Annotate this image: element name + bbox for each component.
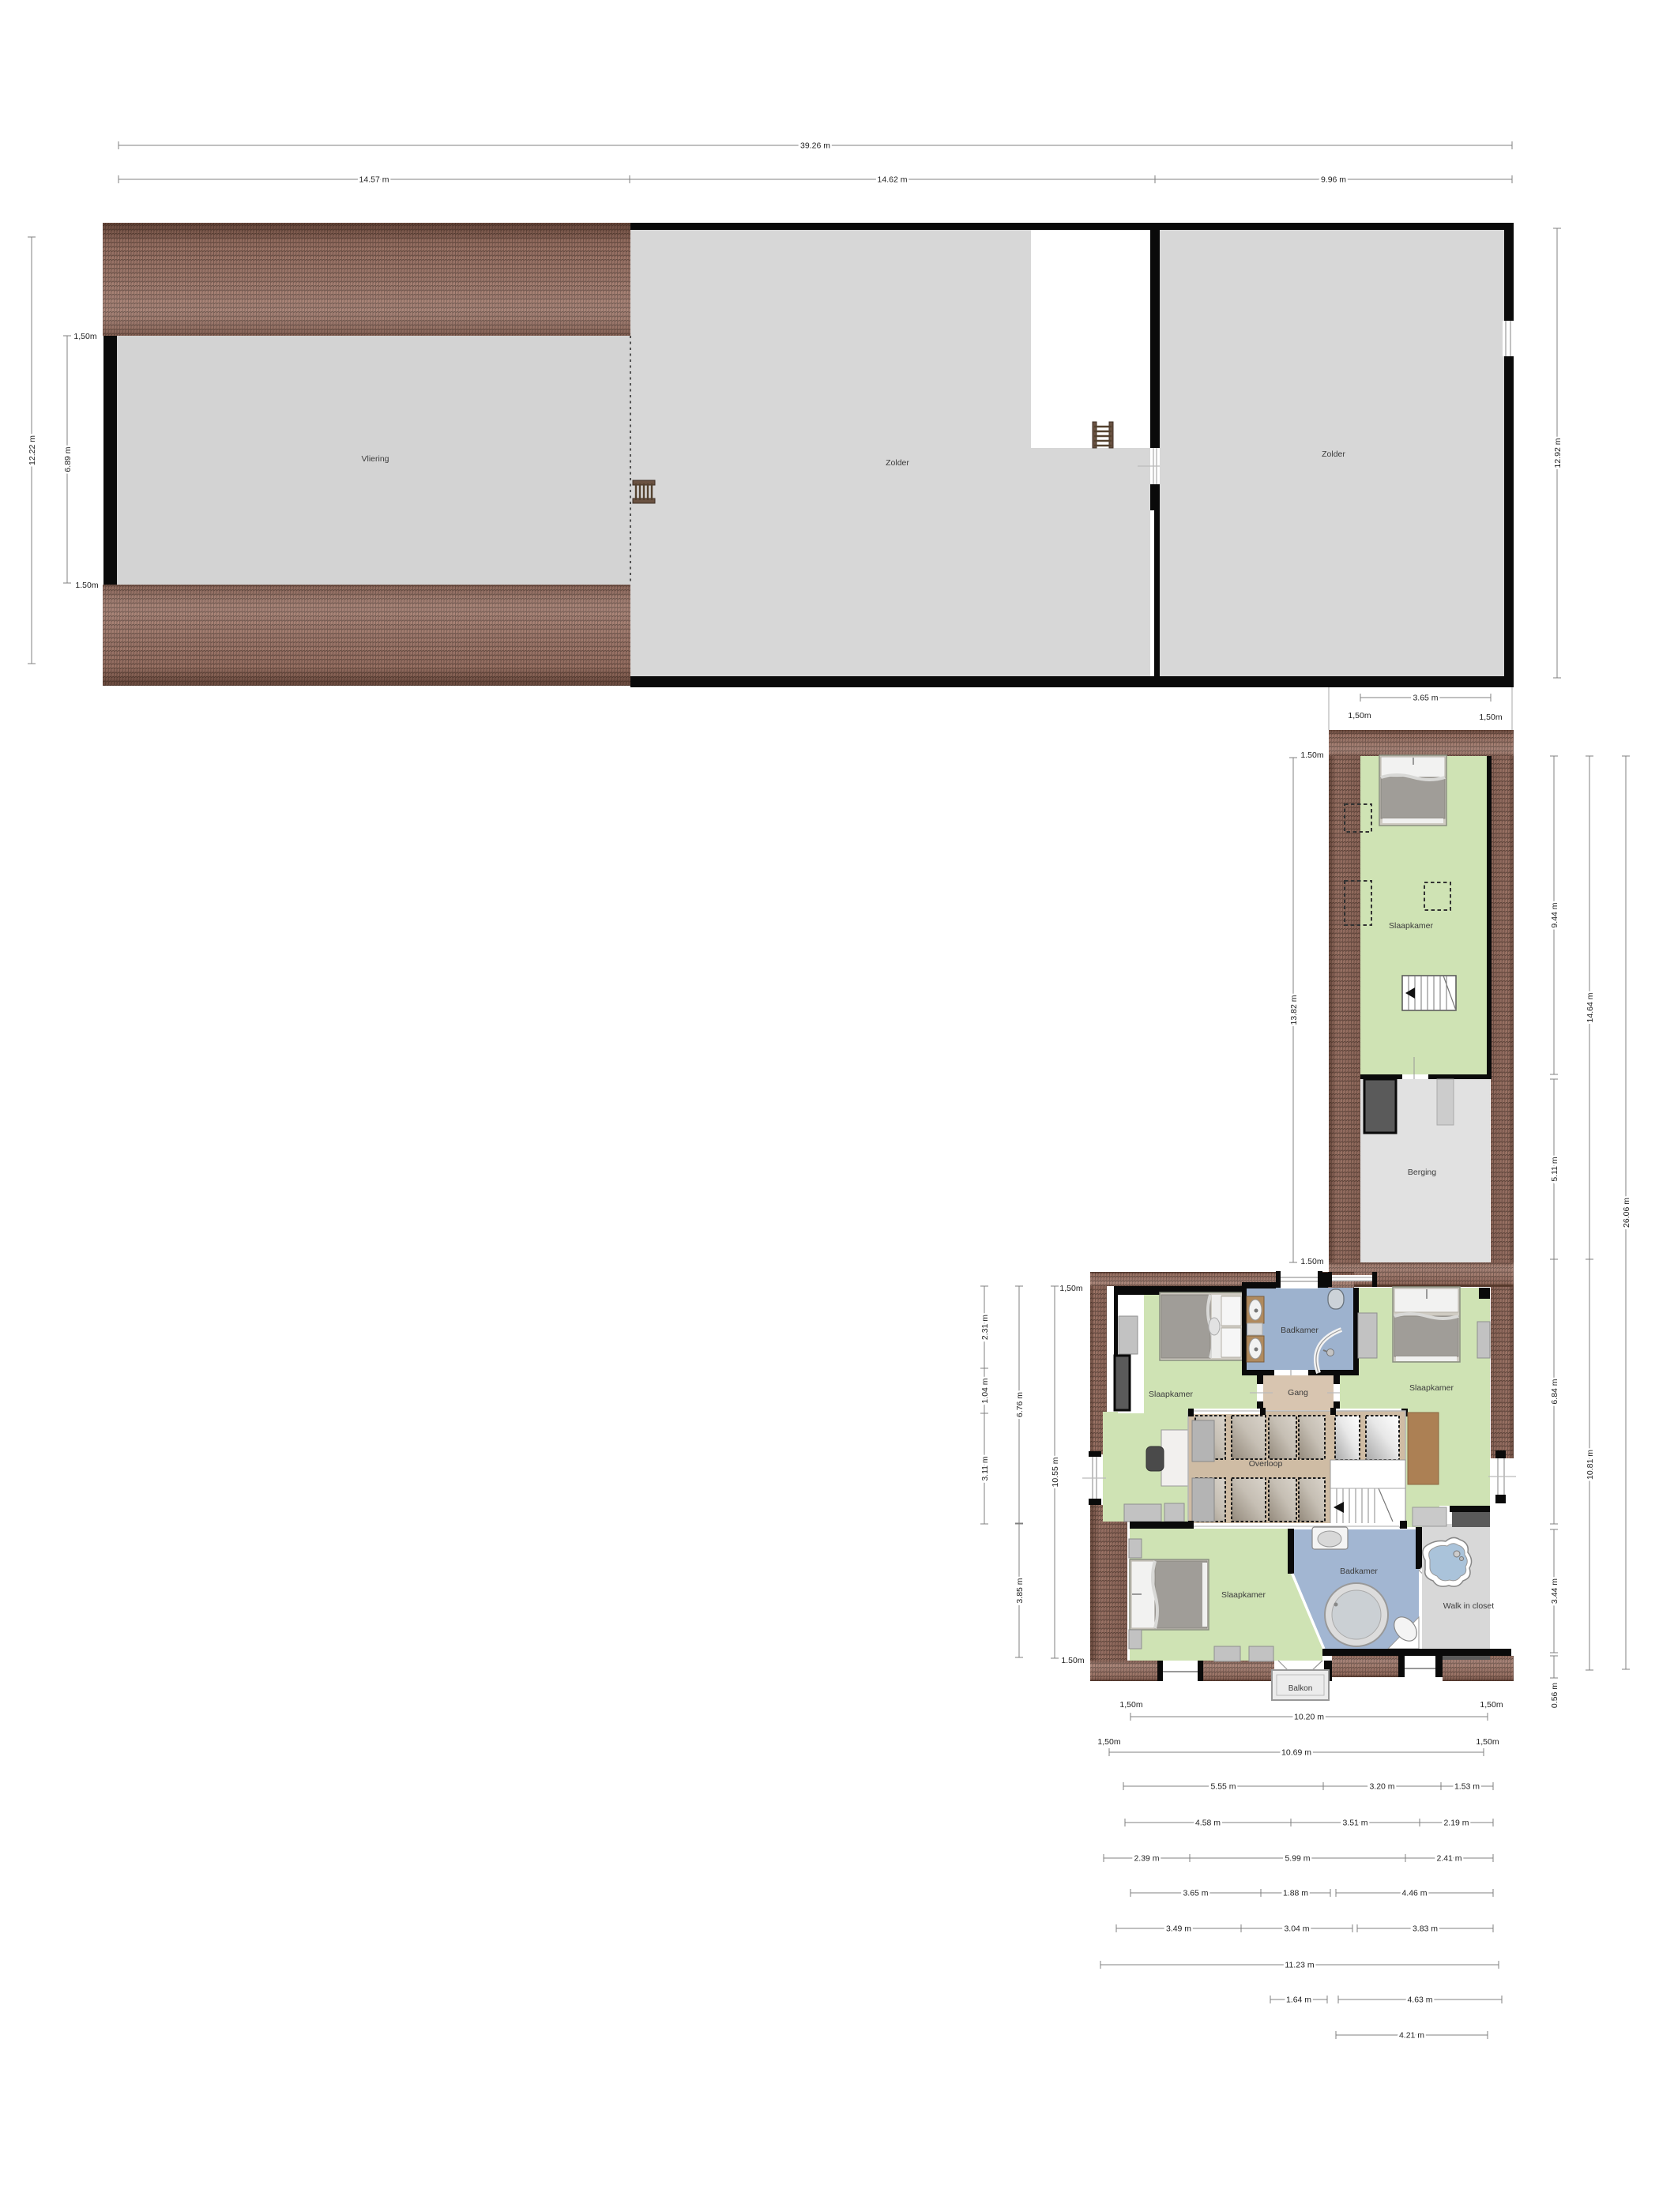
- svg-text:3.44 m: 3.44 m: [1550, 1578, 1559, 1604]
- svg-text:2.19 m: 2.19 m: [1443, 1819, 1469, 1828]
- svg-text:12.92 m: 12.92 m: [1553, 438, 1563, 468]
- svg-text:2.39 m: 2.39 m: [1134, 1854, 1159, 1864]
- svg-text:14.64 m: 14.64 m: [1586, 992, 1595, 1022]
- svg-text:11.23 m: 11.23 m: [1285, 1961, 1314, 1970]
- svg-text:Overloop: Overloop: [1249, 1459, 1283, 1469]
- svg-text:1,50m: 1,50m: [1059, 1284, 1082, 1293]
- svg-text:1.50m: 1.50m: [75, 581, 98, 590]
- svg-text:Slaapkamer: Slaapkamer: [1221, 1590, 1266, 1600]
- svg-text:10.69 m: 10.69 m: [1281, 1748, 1311, 1758]
- svg-text:1.50m: 1.50m: [1300, 1257, 1323, 1266]
- svg-text:1.50m: 1.50m: [1300, 750, 1323, 760]
- svg-text:14.57 m: 14.57 m: [359, 175, 389, 185]
- svg-text:2.31 m: 2.31 m: [980, 1315, 990, 1340]
- svg-text:6.76 m: 6.76 m: [1015, 1392, 1025, 1417]
- svg-text:6.89 m: 6.89 m: [63, 446, 73, 472]
- svg-text:Gang: Gang: [1288, 1388, 1308, 1398]
- svg-text:1,50m: 1,50m: [1479, 713, 1502, 722]
- svg-text:Slaapkamer: Slaapkamer: [1149, 1390, 1194, 1399]
- svg-text:26.06 m: 26.06 m: [1622, 1198, 1631, 1228]
- svg-text:3.04 m: 3.04 m: [1284, 1924, 1309, 1934]
- svg-text:1.53 m: 1.53 m: [1454, 1782, 1480, 1792]
- svg-text:4.46 m: 4.46 m: [1401, 1889, 1427, 1898]
- svg-text:1,50m: 1,50m: [1476, 1737, 1499, 1747]
- svg-text:1,50m: 1,50m: [1119, 1700, 1142, 1710]
- svg-text:13.82 m: 13.82 m: [1289, 995, 1299, 1025]
- svg-text:1,50m: 1,50m: [1348, 711, 1371, 720]
- svg-text:3.20 m: 3.20 m: [1369, 1782, 1394, 1792]
- svg-text:Zolder: Zolder: [1322, 450, 1345, 459]
- svg-text:1,50m: 1,50m: [1097, 1737, 1120, 1747]
- svg-text:3.51 m: 3.51 m: [1342, 1819, 1367, 1828]
- svg-text:Balkon: Balkon: [1288, 1684, 1313, 1693]
- svg-text:5.99 m: 5.99 m: [1285, 1854, 1310, 1864]
- svg-text:4.21 m: 4.21 m: [1399, 2031, 1424, 2041]
- svg-text:5.55 m: 5.55 m: [1210, 1782, 1236, 1792]
- svg-text:3.49 m: 3.49 m: [1166, 1924, 1191, 1934]
- svg-text:1.04 m: 1.04 m: [980, 1378, 990, 1403]
- svg-text:10.55 m: 10.55 m: [1051, 1457, 1060, 1487]
- svg-text:3.65 m: 3.65 m: [1183, 1889, 1208, 1898]
- svg-text:Vliering: Vliering: [361, 454, 389, 464]
- svg-text:1,50m: 1,50m: [1480, 1700, 1503, 1710]
- svg-text:Berging: Berging: [1408, 1168, 1436, 1177]
- svg-text:12.22 m: 12.22 m: [28, 435, 37, 465]
- svg-text:Badkamer: Badkamer: [1340, 1567, 1378, 1576]
- svg-text:9.44 m: 9.44 m: [1550, 902, 1559, 927]
- svg-text:9.96 m: 9.96 m: [1321, 175, 1346, 185]
- svg-text:10.81 m: 10.81 m: [1586, 1450, 1595, 1480]
- svg-text:Slaapkamer: Slaapkamer: [1409, 1383, 1454, 1393]
- svg-text:5.11 m: 5.11 m: [1550, 1157, 1559, 1182]
- svg-text:4.58 m: 4.58 m: [1195, 1819, 1221, 1828]
- svg-text:1.88 m: 1.88 m: [1283, 1889, 1308, 1898]
- svg-text:Zolder: Zolder: [886, 458, 909, 468]
- svg-text:1.64 m: 1.64 m: [1286, 1996, 1311, 2005]
- svg-text:Badkamer: Badkamer: [1281, 1326, 1319, 1335]
- svg-text:3.11 m: 3.11 m: [980, 1456, 990, 1481]
- svg-text:2.41 m: 2.41 m: [1436, 1854, 1461, 1864]
- svg-text:6.84 m: 6.84 m: [1550, 1379, 1559, 1404]
- svg-text:0.56 m: 0.56 m: [1550, 1683, 1559, 1708]
- svg-text:3.85 m: 3.85 m: [1015, 1578, 1025, 1603]
- svg-text:1.50m: 1.50m: [1061, 1656, 1084, 1665]
- svg-text:Walk in closet: Walk in closet: [1443, 1601, 1494, 1611]
- svg-text:3.65 m: 3.65 m: [1413, 694, 1438, 703]
- svg-text:10.20 m: 10.20 m: [1294, 1713, 1324, 1722]
- svg-text:14.62 m: 14.62 m: [878, 175, 908, 185]
- svg-text:39.26 m: 39.26 m: [800, 141, 830, 151]
- svg-text:4.63 m: 4.63 m: [1407, 1996, 1432, 2005]
- svg-text:Slaapkamer: Slaapkamer: [1389, 921, 1434, 931]
- svg-text:3.83 m: 3.83 m: [1413, 1924, 1438, 1934]
- svg-text:1,50m: 1,50m: [73, 332, 96, 341]
